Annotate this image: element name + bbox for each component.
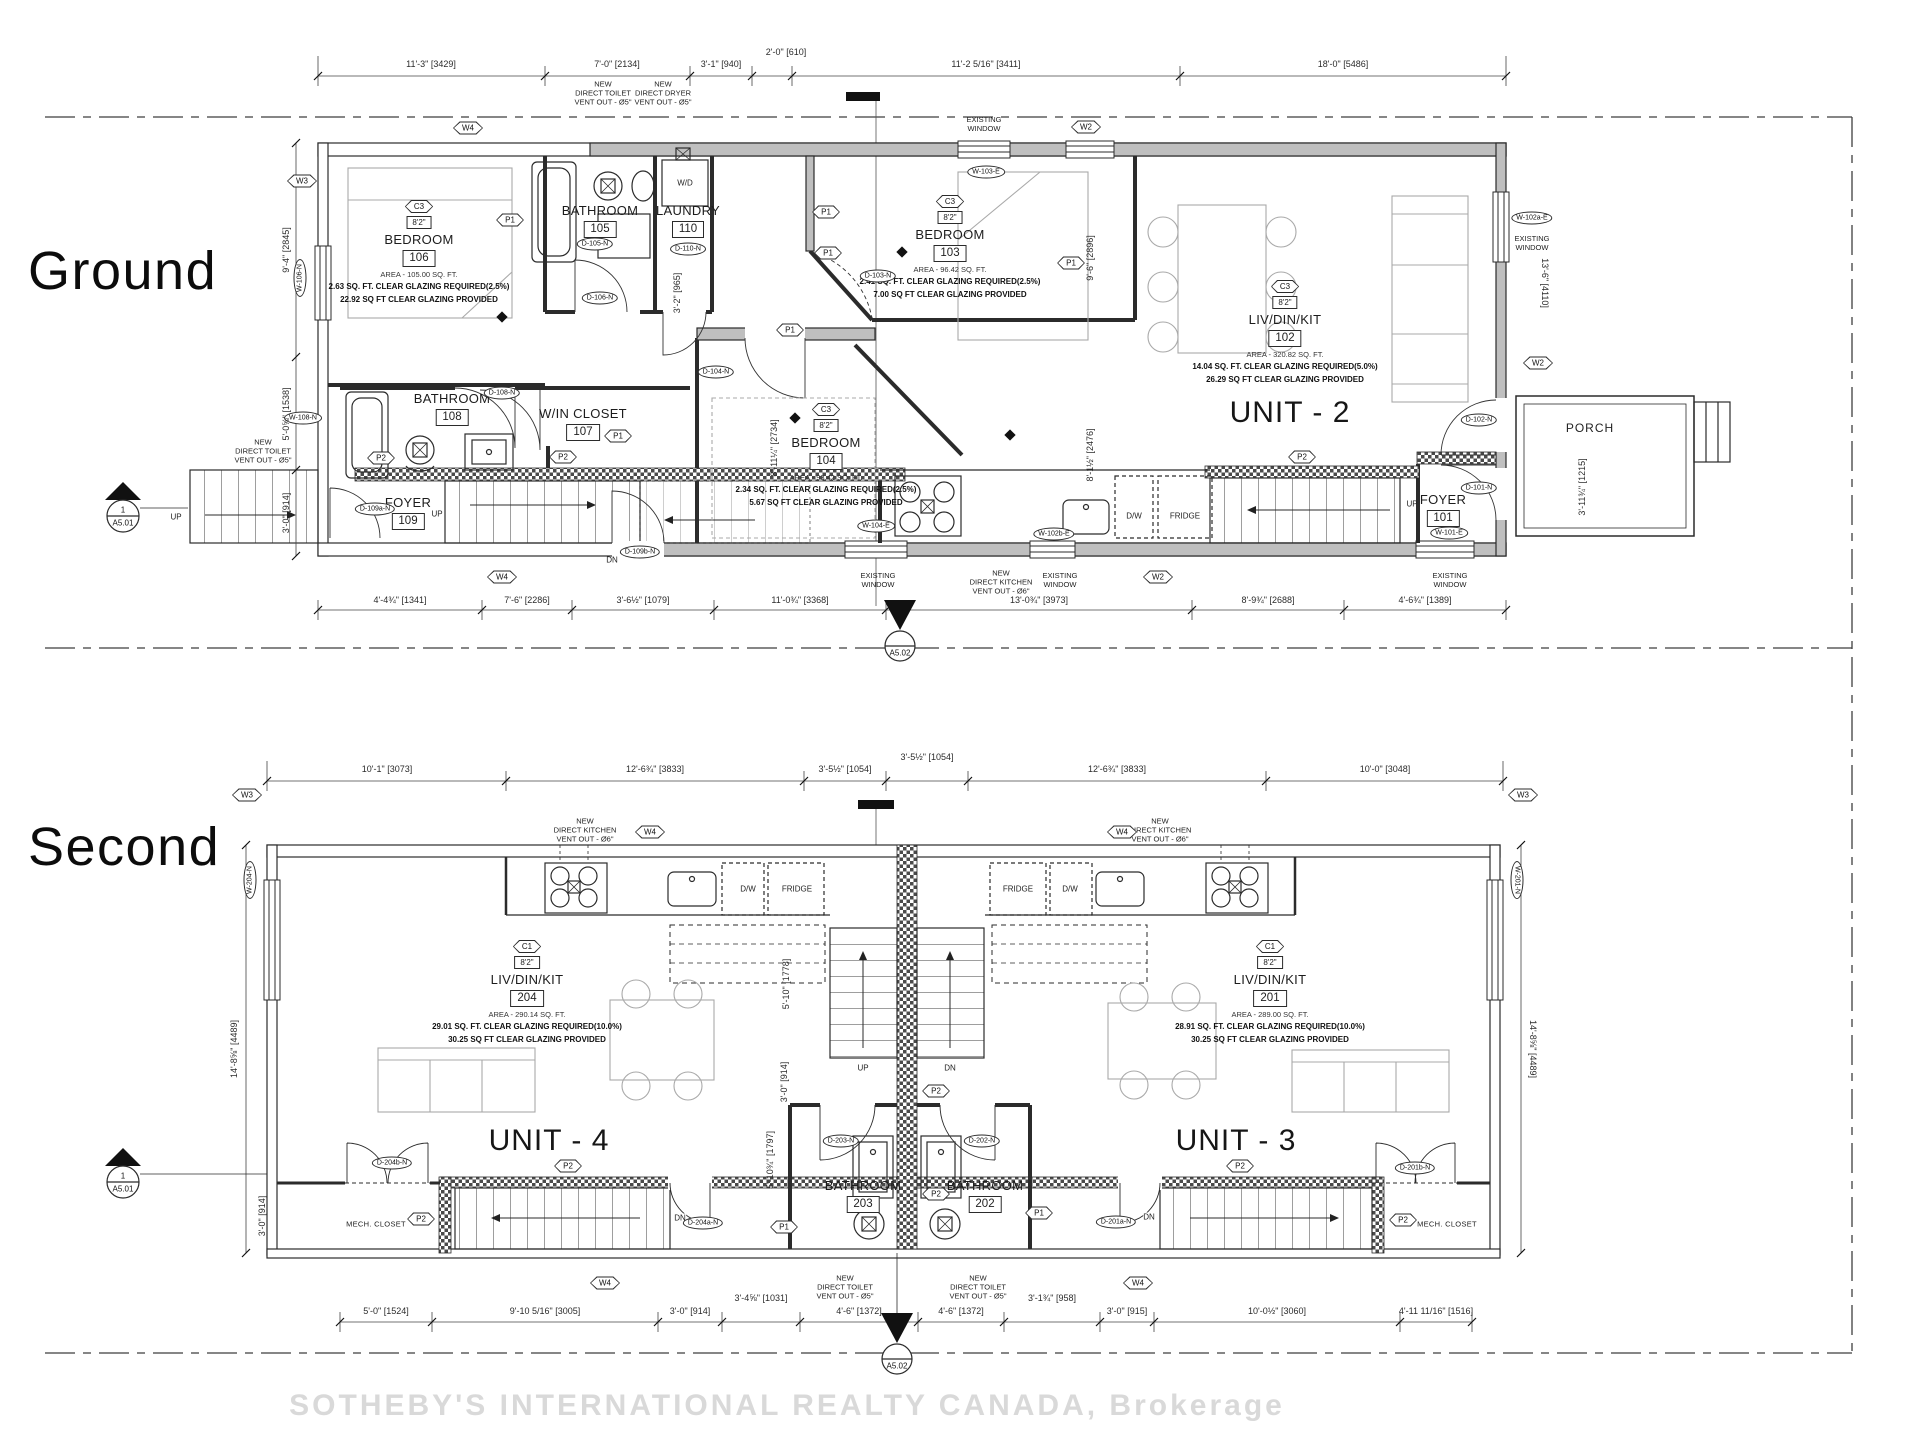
dimension-label: 3'-0" [914] xyxy=(257,1196,267,1236)
room-area: AREA - 93.42 SQ. FT. xyxy=(790,473,863,482)
door-id-tag: D-109b-N xyxy=(620,546,660,559)
porch-label: PORCH xyxy=(1566,421,1614,435)
window-id-tag: W-104-E xyxy=(857,520,895,533)
room-name: BATHROOM xyxy=(947,1178,1024,1193)
room-number: 106 xyxy=(402,250,435,267)
note-dryer-vent: NEW DIRECT DRYER VENT OUT - Ø5" xyxy=(635,80,692,107)
dimension-label: 10'-1" [3073] xyxy=(362,764,412,774)
hall-wall xyxy=(806,156,814,251)
room-name: BATHROOM xyxy=(825,1178,902,1193)
section-marker-number: 1 xyxy=(121,506,125,515)
dimension-label: 3'-0" [914] xyxy=(779,1062,789,1102)
glazing-required: 28.91 SQ. FT. CLEAR GLAZING REQUIRED(10.… xyxy=(1175,1022,1365,1032)
mech-closet-label: MECH. CLOSET xyxy=(1417,1220,1477,1229)
glazing-required: 14.04 SQ. FT. CLEAR GLAZING REQUIRED(5.0… xyxy=(1192,362,1377,372)
room-number: 203 xyxy=(846,1196,879,1213)
ceiling-height: 8'2" xyxy=(514,956,539,969)
room-number: 202 xyxy=(968,1196,1001,1213)
room-name: BEDROOM xyxy=(915,227,984,242)
note-existing-window: EXISTING WINDOW xyxy=(1432,571,1467,589)
window-id-tag: W-201-N xyxy=(1511,861,1524,899)
fridge-label: FRIDGE xyxy=(1170,512,1200,521)
section-marker-sheet: A5.02 xyxy=(890,649,911,658)
room-label-laundry-110: LAUNDRY 110 xyxy=(656,203,720,238)
dimension-label: 10'-0½" [3060] xyxy=(1248,1306,1306,1316)
note-existing-window: EXISTING WINDOW xyxy=(1042,571,1077,589)
unit-label-4: UNIT - 4 xyxy=(489,1124,610,1158)
floor-label-second: Second xyxy=(28,816,220,878)
dimension-label: 3'-1" [940] xyxy=(701,59,741,69)
fridge-label: FRIDGE xyxy=(782,885,812,894)
window-id-tag: W-103-E xyxy=(967,166,1005,179)
section-marker-a502 xyxy=(881,1253,913,1374)
door-id-tag: D-204a-N xyxy=(683,1217,723,1230)
dimension-label: 5'-0⅝" [1538] xyxy=(281,388,291,441)
floor-plan-sheet: Ground Second UNIT - 2 UNIT - 4 UNIT - 3… xyxy=(0,0,1920,1440)
stair-direction-label: DN xyxy=(944,1064,956,1073)
door-id-tag: D-109a-N xyxy=(355,503,395,516)
room-number: 102 xyxy=(1268,330,1301,347)
room-number: 103 xyxy=(933,245,966,262)
dimension-label: 3'-4⅝" [1031] xyxy=(735,1293,788,1303)
washer-dryer-icon xyxy=(662,148,708,206)
dishwasher-label: D/W xyxy=(1126,512,1142,521)
dimension-label: 4'-6" [1372] xyxy=(938,1306,983,1316)
note-toilet-vent: NEW DIRECT TOILET VENT OUT - Ø5" xyxy=(575,80,632,107)
dishwasher-label: D/W xyxy=(740,885,756,894)
note-kitchen-vent: NEW DIRECT KITCHEN VENT OUT - Ø6" xyxy=(970,569,1033,596)
dimension-label: 3'-11¾" [1215] xyxy=(1577,458,1587,515)
mech-closet-label: MECH. CLOSET xyxy=(346,1220,406,1229)
dimension-label: 8'-9¾" [2688] xyxy=(1242,595,1295,605)
ground-floor-linework xyxy=(105,56,1730,661)
stair-direction-label: UP xyxy=(170,513,181,522)
stair-direction-label: UP xyxy=(1406,500,1417,509)
watermark: SOTHEBY'S INTERNATIONAL REALTY CANADA, B… xyxy=(289,1389,1285,1423)
stair-direction-label: DN xyxy=(1143,1213,1155,1222)
glazing-provided: 30.25 SQ FT CLEAR GLAZING PROVIDED xyxy=(1191,1035,1349,1045)
room-number: 107 xyxy=(566,424,599,441)
room-name: BATHROOM xyxy=(562,203,639,218)
dimension-label: 3'-1¾" [958] xyxy=(1028,1293,1076,1303)
glazing-required: 2.34 SQ. FT. CLEAR GLAZING REQUIRED(2.5%… xyxy=(736,485,917,495)
dimension-label: 4'-6" [1372] xyxy=(836,1306,881,1316)
dimension-label: 7'-0" [2134] xyxy=(594,59,639,69)
room-name: LIV/DIN/KIT xyxy=(491,972,564,987)
washer-dryer-label: W/D xyxy=(677,179,693,188)
ceiling-height: 8'2" xyxy=(813,419,838,432)
room-label-livdinkit-102: C3 8'2" LIV/DIN/KIT 102 AREA - 320.82 SQ… xyxy=(1192,280,1377,384)
glazing-provided: 22.92 SQ FT CLEAR GLAZING PROVIDED xyxy=(340,295,498,305)
room-name: W/IN CLOSET xyxy=(539,406,627,421)
dimension-label: 13'-6" [4110] xyxy=(1540,258,1550,308)
dimension-label: 12'-6¾" [3833] xyxy=(1088,764,1146,774)
dimension-label: 14'-8⅝" [4489] xyxy=(1528,1020,1538,1078)
section-marker-sheet: A5.02 xyxy=(887,1362,908,1371)
room-number: 101 xyxy=(1426,510,1459,527)
dimension-label: 9'-6" [2896] xyxy=(1085,235,1095,280)
stair-direction-label: DN xyxy=(606,556,618,565)
dimension-label: 7'-6" [2286] xyxy=(504,595,549,605)
second-floor-linework xyxy=(105,761,1525,1374)
floor-label-ground: Ground xyxy=(28,240,217,302)
ceiling-tag-icon: C3 xyxy=(1271,280,1299,293)
dimension-label: 4'-4¾" [1341] xyxy=(374,595,427,605)
room-name: BEDROOM xyxy=(791,435,860,450)
room-label-bedroom-104: C3 8'2" BEDROOM 104 AREA - 93.42 SQ. FT.… xyxy=(736,403,917,507)
room-number: 204 xyxy=(510,990,543,1007)
room-name: LAUNDRY xyxy=(656,203,720,218)
dimension-label: 3'-5½" [1054] xyxy=(901,752,954,762)
room-label-bathroom-105: BATHROOM 105 xyxy=(562,203,639,238)
note-toilet-vent: NEW DIRECT TOILET VENT OUT - Ø5" xyxy=(817,1274,874,1301)
glazing-provided: 30.25 SQ FT CLEAR GLAZING PROVIDED xyxy=(448,1035,606,1045)
door-id-tag: D-201b-N xyxy=(1395,1162,1435,1175)
room-area: AREA - 320.82 SQ. FT. xyxy=(1246,350,1323,359)
unit-label-3: UNIT - 3 xyxy=(1176,1124,1297,1158)
dimension-label: 10'-0" [3048] xyxy=(1360,764,1410,774)
ceiling-tag-icon: C3 xyxy=(812,403,840,416)
room-label-bathroom-108: BATHROOM 108 xyxy=(414,391,491,426)
room-area: AREA - 105.00 SQ. FT. xyxy=(380,270,457,279)
ceiling-tag-icon: C3 xyxy=(405,200,433,213)
dimension-label: 18'-0" [5486] xyxy=(1318,59,1368,69)
section-marker-sheet: A5.01 xyxy=(113,519,134,528)
glazing-provided: 26.29 SQ FT CLEAR GLAZING PROVIDED xyxy=(1206,375,1364,385)
room-name: BATHROOM xyxy=(414,391,491,406)
note-existing-window: EXISTING WINDOW xyxy=(1514,234,1549,252)
room-area: AREA - 290.14 SQ. FT. xyxy=(488,1010,565,1019)
ceiling-height: 8'2" xyxy=(1257,956,1282,969)
door-id-tag: D-201a-N xyxy=(1096,1216,1136,1229)
room-name: BEDROOM xyxy=(384,232,453,247)
window-id-tag: W-102a-E xyxy=(1511,212,1552,225)
room-label-foyer-101: FOYER 101 xyxy=(1420,492,1466,527)
door-id-tag: D-110-N xyxy=(670,243,706,256)
unit-label-2: UNIT - 2 xyxy=(1230,396,1351,430)
stair-direction-label: UP xyxy=(431,510,442,519)
note-existing-window: EXISTING WINDOW xyxy=(966,115,1001,133)
room-number: 104 xyxy=(809,453,842,470)
room-label-bedroom-103: C3 8'2" BEDROOM 103 AREA - 96.42 SQ. FT.… xyxy=(860,195,1041,299)
dimension-label: 2'-0" [610] xyxy=(766,47,806,57)
room-area: AREA - 96.42 SQ. FT. xyxy=(914,265,987,274)
fridge-label: FRIDGE xyxy=(1003,885,1033,894)
ceiling-height: 8'2" xyxy=(937,211,962,224)
room-label-foyer-109: FOYER 109 xyxy=(385,495,431,530)
section-marker-sheet: A5.01 xyxy=(113,1185,134,1194)
dishwasher-label: D/W xyxy=(1062,885,1078,894)
glazing-required: 29.01 SQ. FT. CLEAR GLAZING REQUIRED(10.… xyxy=(432,1022,622,1032)
note-kitchen-vent: NEW DIRECT KITCHEN VENT OUT - Ø6" xyxy=(1129,817,1192,844)
room-label-bathroom-203: BATHROOM 203 xyxy=(825,1178,902,1213)
dimension-label: 8'-11¼" [2734] xyxy=(769,419,779,476)
ceiling-tag-icon: C1 xyxy=(513,940,541,953)
room-name: LIV/DIN/KIT xyxy=(1234,972,1307,987)
dimension-label: 14'-8⅝" [4489] xyxy=(229,1020,239,1078)
room-label-livdinkit-204: C1 8'2" LIV/DIN/KIT 204 AREA - 290.14 SQ… xyxy=(432,940,622,1044)
dimension-label: 9'-10 5/16" [3005] xyxy=(510,1306,580,1316)
window-id-tag: W-101-E xyxy=(1430,527,1468,540)
ceiling-height: 8'2" xyxy=(1272,296,1297,309)
dimension-label: 12'-6¾" [3833] xyxy=(626,764,684,774)
stair-direction-label: UP xyxy=(857,1064,868,1073)
window-id-tag: W-102b-E xyxy=(1033,528,1074,541)
dimension-label: 3'-0" [915] xyxy=(1107,1306,1147,1316)
room-label-bedroom-106: C3 8'2" BEDROOM 106 AREA - 105.00 SQ. FT… xyxy=(329,200,510,304)
room-label-livdinkit-201: C1 8'2" LIV/DIN/KIT 201 AREA - 289.00 SQ… xyxy=(1175,940,1365,1044)
room-name: LIV/DIN/KIT xyxy=(1249,312,1322,327)
note-kitchen-vent: NEW DIRECT KITCHEN VENT OUT - Ø6" xyxy=(554,817,617,844)
party-wall-hatch xyxy=(355,452,1496,481)
dimension-label: 3'-0" [914] xyxy=(670,1306,710,1316)
room-number: 201 xyxy=(1253,990,1286,1007)
note-existing-window: EXISTING WINDOW xyxy=(860,571,895,589)
porch-deck xyxy=(1516,396,1730,536)
glazing-required: 2.63 SQ. FT. CLEAR GLAZING REQUIRED(2.5%… xyxy=(329,282,510,292)
door-id-tag: D-204b-N xyxy=(372,1157,412,1170)
dimension-label: 5'-10¾" [1797] xyxy=(765,1131,775,1189)
dimension-label: 3'-6½" [1079] xyxy=(617,595,670,605)
ceiling-height: 8'2" xyxy=(406,216,431,229)
room-label-bathroom-202: BATHROOM 202 xyxy=(947,1178,1024,1213)
room-area: AREA - 289.00 SQ. FT. xyxy=(1231,1010,1308,1019)
window-id-tag: W-106-N xyxy=(294,259,307,297)
dimension-label: 5'-0" [1524] xyxy=(363,1306,408,1316)
dimension-label: 3'-2" [965] xyxy=(672,273,682,313)
window-id-tag: W-204-N xyxy=(244,861,257,899)
glazing-provided: 5.67 SQ FT CLEAR GLAZING PROVIDED xyxy=(749,498,902,508)
dimension-label: 11'-0¾" [3368] xyxy=(771,595,828,605)
room-number: 110 xyxy=(672,221,704,238)
dimension-label: 5'-10" [1778] xyxy=(781,959,791,1009)
dimension-label: 13'-0¾" [3973] xyxy=(1010,595,1068,605)
note-toilet-vent: NEW DIRECT TOILET VENT OUT - Ø5" xyxy=(235,438,292,465)
room-number: 105 xyxy=(583,221,616,238)
section-cut-flag xyxy=(858,800,894,845)
ceiling-tag-icon: C1 xyxy=(1256,940,1284,953)
dimension-label: 8'-1½" [2476] xyxy=(1085,429,1095,482)
room-name: FOYER xyxy=(1420,492,1466,507)
dimension-label: 3'-5½" [1054] xyxy=(819,764,872,774)
room-number: 108 xyxy=(435,409,468,426)
dimension-label: 3'-0" [914] xyxy=(281,493,291,533)
dimension-label: 4'-11 11/16" [1516] xyxy=(1399,1306,1473,1316)
glazing-provided: 7.00 SQ FT CLEAR GLAZING PROVIDED xyxy=(873,290,1026,300)
note-toilet-vent: NEW DIRECT TOILET VENT OUT - Ø5" xyxy=(950,1274,1007,1301)
dimension-label: 11'-2 5/16" [3411] xyxy=(951,59,1020,69)
dimension-label: 11'-3" [3429] xyxy=(406,59,456,69)
room-number: 109 xyxy=(391,513,424,530)
ceiling-tag-icon: C3 xyxy=(936,195,964,208)
dimension-label: 4'-6¾" [1389] xyxy=(1399,595,1452,605)
dimension-label: 9'-4" [2845] xyxy=(281,227,291,272)
section-marker-number: 1 xyxy=(121,1172,125,1181)
